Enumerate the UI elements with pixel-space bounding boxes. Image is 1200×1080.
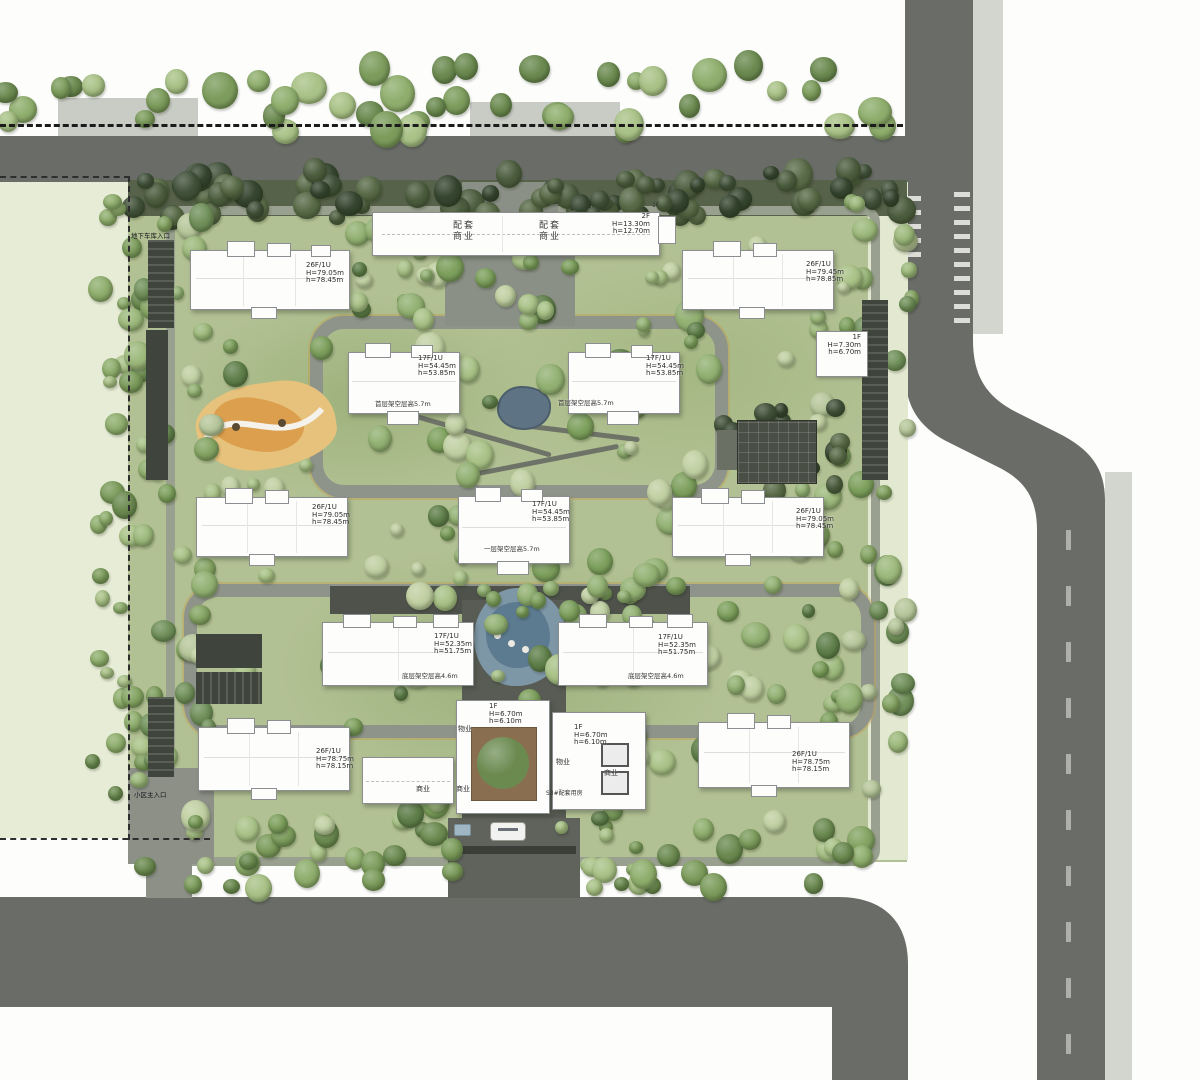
playground bbox=[196, 383, 336, 469]
s3-building-name: S3#配套用房 bbox=[546, 788, 583, 797]
mid-se-label: 17F/1UH=52.35mh=51.75m bbox=[658, 634, 696, 657]
biz-center-label: 商业 bbox=[456, 786, 470, 794]
courtyard-tree bbox=[477, 737, 529, 789]
north-retail-info-label: 2FH=13.30mh=12.70m bbox=[610, 213, 650, 236]
building-south-retail-west bbox=[362, 757, 454, 804]
tower-sw-label: 26F/1UH=78.75mh=78.15m bbox=[316, 748, 354, 771]
upper-pond bbox=[497, 386, 551, 430]
north-entrance-plaza bbox=[445, 256, 575, 326]
biz-west-label: 商业 bbox=[416, 786, 430, 794]
service-block-a bbox=[196, 634, 262, 668]
tower-se-label: 26F/1UH=78.75mh=78.15m bbox=[792, 751, 830, 774]
tower-ne-label: 26F/1UH=79.45mh=78.85m bbox=[806, 261, 844, 284]
garage-ramp-west-south bbox=[148, 697, 174, 777]
site-plan: 26F/1UH=79.05mh=78.45m 26F/1UH=79.45mh=7… bbox=[0, 0, 1200, 1080]
underground-garage-entrance-label: 地下车库入口 bbox=[131, 230, 170, 240]
south-retail-east-info: 1FH=6.70mh=6.10m bbox=[574, 724, 608, 747]
clubhouse bbox=[737, 420, 817, 484]
property-west-label: 物业 bbox=[458, 726, 472, 734]
playground-path bbox=[196, 383, 336, 469]
mid-se-stilt-note: 底层架空层高4.6m bbox=[628, 670, 684, 680]
mid-ne-stilt-note: 首层架空层高5.7m bbox=[558, 397, 614, 407]
garage-ramp-west-north bbox=[148, 240, 174, 328]
car bbox=[454, 824, 471, 836]
service-block-b bbox=[196, 672, 262, 704]
clubhouse-deck bbox=[717, 430, 737, 470]
north-retail-left-label: 配套商业 bbox=[447, 221, 481, 243]
stepping-stone bbox=[508, 640, 515, 647]
mid-c-stilt-note: 一层架空层高5.7m bbox=[484, 543, 540, 553]
southwest-entrance-stem bbox=[146, 838, 192, 898]
tower-e-label: 26F/1UH=79.05mh=78.45m bbox=[796, 508, 834, 531]
boundary-dashed-line bbox=[128, 176, 130, 840]
property-east-label: 物业 bbox=[556, 759, 570, 767]
retail-skylight bbox=[601, 743, 629, 767]
north-retail-floor-tag: 1F bbox=[652, 202, 659, 209]
mid-ne-label: 17F/1UH=54.45mh=53.85m bbox=[646, 355, 684, 378]
car bbox=[490, 822, 526, 841]
garage-ramp-east bbox=[862, 300, 888, 480]
boundary-dashed-line bbox=[0, 124, 903, 127]
east-kiosk-label: 1FH=7.30mh=6.70m bbox=[819, 334, 861, 357]
tower-w-label: 26F/1UH=79.05mh=78.45m bbox=[312, 504, 350, 527]
mid-nw-label: 17F/1UH=54.45mh=53.85m bbox=[418, 355, 456, 378]
biz-east-label: 商业 bbox=[604, 770, 618, 778]
west-wall-strip bbox=[146, 330, 168, 480]
mid-nw-stilt-note: 首层架空层高5.7m bbox=[375, 398, 431, 408]
building-north-retail-annex bbox=[658, 216, 676, 244]
boundary-dashed-line bbox=[0, 176, 130, 178]
tower-nw-label: 26F/1UH=79.05mh=78.45m bbox=[306, 262, 344, 285]
mid-c-label: 17F/1UH=54.45mh=53.85m bbox=[532, 501, 570, 524]
south-gate bbox=[452, 846, 576, 854]
stepping-stone bbox=[494, 632, 501, 639]
community-main-entrance-label: 小区主入口 bbox=[134, 789, 167, 799]
stepping-stone bbox=[522, 646, 529, 653]
boundary-dashed-line bbox=[0, 838, 210, 840]
north-retail-right-label: 配套商业 bbox=[533, 221, 567, 243]
mid-sw-stilt-note: 底层架空层高4.6m bbox=[402, 670, 458, 680]
mid-sw-label: 17F/1UH=52.35mh=51.75m bbox=[434, 633, 472, 656]
south-retail-center-info: 1FH=6.70mh=6.10m bbox=[489, 703, 523, 726]
